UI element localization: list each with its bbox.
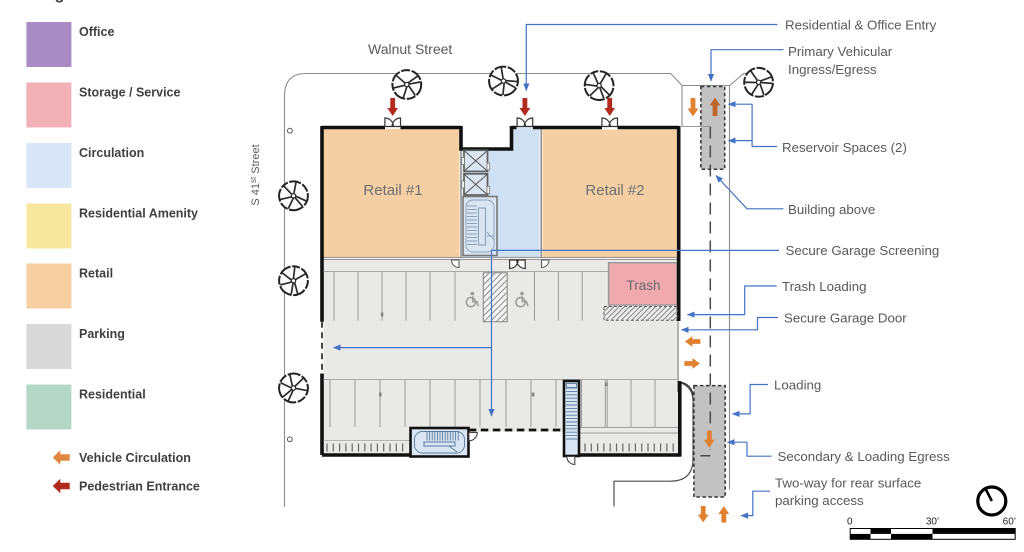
svg-text:Walnut Street: Walnut Street [368, 41, 452, 57]
svg-text:Office: Office [79, 25, 114, 39]
svg-text:Storage / Service: Storage / Service [79, 86, 180, 100]
svg-text:Vehicle Circulation: Vehicle Circulation [79, 451, 191, 465]
svg-text:Primary Vehicular: Primary Vehicular [788, 44, 893, 59]
svg-text:Retail #1: Retail #1 [363, 182, 422, 199]
svg-text:Parking: Parking [79, 327, 125, 341]
svg-text:Loading: Loading [774, 378, 821, 393]
svg-text:0: 0 [847, 517, 853, 528]
svg-text:Trash: Trash [626, 278, 660, 293]
svg-text:Ingress/Egress: Ingress/Egress [788, 62, 877, 77]
svg-text:Residential & Office Entry: Residential & Office Entry [785, 18, 937, 33]
svg-text:S 41st Street: S 41st Street [249, 144, 262, 205]
svg-text:30’: 30’ [926, 517, 939, 528]
svg-text:Reservoir Spaces (2): Reservoir Spaces (2) [782, 140, 907, 155]
svg-text:Legend: Legend [36, 0, 93, 3]
svg-text:Secondary & Loading Egress: Secondary & Loading Egress [778, 449, 951, 464]
svg-text:Two-way for rear surface: Two-way for rear surface [775, 476, 921, 491]
svg-text:Secure Garage Screening: Secure Garage Screening [786, 243, 940, 258]
svg-text:Retail: Retail [79, 267, 113, 281]
svg-text:60’: 60’ [1003, 517, 1016, 528]
svg-text:Trash Loading: Trash Loading [782, 279, 867, 294]
svg-text:Residential Amenity: Residential Amenity [79, 207, 198, 221]
svg-text:Retail #2: Retail #2 [585, 182, 644, 199]
svg-text:Secure Garage Door: Secure Garage Door [784, 311, 907, 326]
svg-text:parking access: parking access [775, 493, 864, 508]
svg-text:Pedestrian Entrance: Pedestrian Entrance [79, 480, 200, 494]
svg-text:Building above: Building above [788, 202, 875, 217]
svg-text:Residential: Residential [79, 388, 146, 402]
svg-text:Circulation: Circulation [79, 146, 144, 160]
